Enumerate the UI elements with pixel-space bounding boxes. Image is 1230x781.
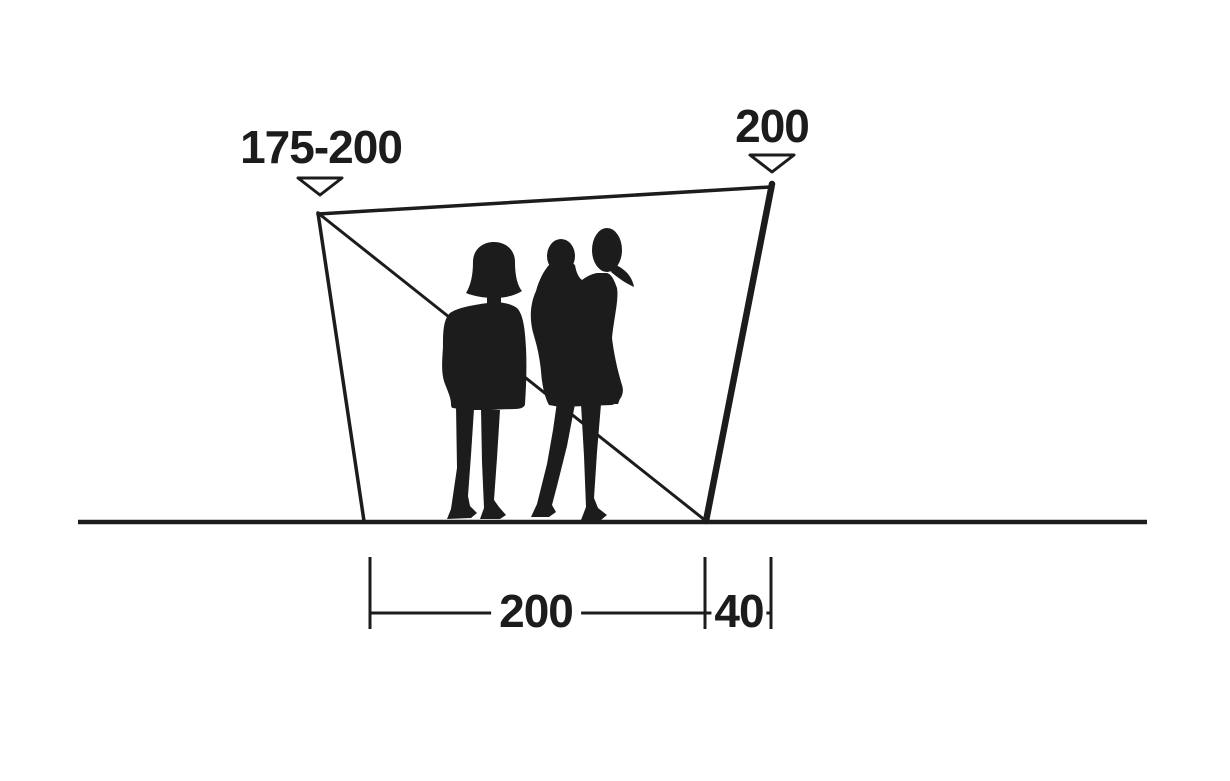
tent-dimension-diagram — [0, 0, 1230, 781]
down-triangle-marker-right-icon — [750, 155, 794, 172]
canopy-left-edge — [318, 213, 364, 521]
side-offset-label: 40 — [711, 588, 766, 634]
pole-height-left-label: 175-200 — [240, 124, 402, 170]
woman-torso — [442, 302, 526, 410]
adult-right-leg — [581, 404, 607, 520]
down-triangle-marker-left-icon — [298, 178, 342, 195]
adult-skirt — [548, 368, 621, 405]
dimension-diagram-canvas: 175-200 200 200 40 — [0, 0, 1230, 781]
woman-right-leg — [480, 409, 506, 519]
canopy-rear-pole — [706, 184, 772, 521]
pole-height-right-label: 200 — [735, 103, 809, 149]
canopy-top-edge — [318, 187, 770, 214]
adult-with-child-silhouette — [531, 228, 634, 520]
woman-silhouette — [442, 242, 526, 519]
adult-left-leg — [531, 402, 575, 517]
adult-head — [592, 228, 622, 272]
woman-left-leg — [447, 406, 477, 519]
base-width-label: 200 — [491, 588, 581, 634]
woman-head — [466, 242, 522, 298]
